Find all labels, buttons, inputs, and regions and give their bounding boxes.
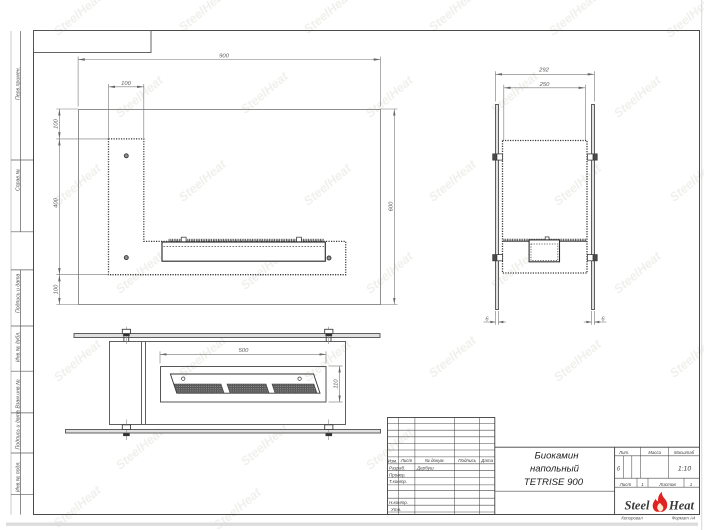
svg-text:SteelHeat: SteelHeat	[176, 333, 229, 381]
svg-text:400: 400	[53, 197, 59, 207]
svg-text:SteelHeat: SteelHeat	[611, 73, 664, 121]
svg-text:Подпись и дата: Подпись и дата	[16, 274, 22, 313]
svg-text:1: 1	[690, 482, 693, 487]
svg-text:Лит.: Лит.	[618, 450, 629, 455]
svg-text:Дербуш: Дербуш	[416, 465, 434, 470]
svg-text:SteelHeat: SteelHeat	[667, 333, 704, 381]
svg-text:1:10: 1:10	[678, 466, 691, 473]
svg-text:100: 100	[53, 118, 59, 128]
svg-text:Масштаб: Масштаб	[674, 450, 695, 455]
svg-text:Листов: Листов	[658, 482, 676, 487]
svg-text:Инв.№ дубл.: Инв.№ дубл.	[16, 332, 22, 362]
svg-text:SteelHeat: SteelHeat	[426, 333, 479, 381]
svg-text:100: 100	[121, 81, 131, 87]
svg-text:SteelHeat: SteelHeat	[546, 0, 599, 39]
svg-text:б: б	[617, 467, 621, 473]
svg-text:SteelHeat: SteelHeat	[51, 337, 104, 385]
svg-text:110: 110	[334, 379, 340, 389]
svg-text:Взам.инв.№: Взам.инв.№	[16, 379, 22, 409]
svg-text:SteelHeat: SteelHeat	[301, 337, 354, 385]
svg-text:SteelHeat: SteelHeat	[301, 0, 354, 37]
svg-text:SteelHeat: SteelHeat	[176, 0, 229, 35]
svg-text:Копировал: Копировал	[621, 516, 643, 521]
svg-text:250: 250	[539, 82, 550, 88]
svg-text:SteelHeat: SteelHeat	[363, 73, 416, 121]
svg-text:SteelHeat: SteelHeat	[611, 249, 664, 297]
svg-text:Перв.примен.: Перв.примен.	[16, 67, 22, 100]
svg-text:292: 292	[538, 68, 549, 74]
svg-text:SteelHeat: SteelHeat	[238, 421, 291, 469]
svg-text:напольный: напольный	[530, 464, 580, 475]
svg-text:Т.контр.: Т.контр.	[389, 479, 407, 484]
svg-text:SteelHeat: SteelHeat	[51, 0, 104, 39]
svg-text:Справ.№: Справ.№	[16, 168, 22, 191]
svg-text:Биокамин: Биокамин	[535, 451, 580, 462]
svg-text:100: 100	[53, 284, 59, 294]
svg-text:SteelHeat: SteelHeat	[551, 337, 604, 385]
svg-text:SteelHeat: SteelHeat	[113, 249, 166, 297]
svg-text:600: 600	[388, 201, 394, 211]
svg-text:Н.контр.: Н.контр.	[389, 500, 408, 505]
svg-text:6: 6	[601, 316, 605, 322]
svg-text:№ докум.: № докум.	[425, 458, 445, 463]
svg-text:SteelHeat: SteelHeat	[426, 0, 479, 35]
svg-text:Утв.: Утв.	[391, 507, 401, 512]
svg-text:SteelHeat: SteelHeat	[363, 249, 416, 297]
svg-text:Лист: Лист	[400, 458, 413, 463]
svg-text:Провер.: Провер.	[389, 472, 406, 477]
svg-text:SteelHeat: SteelHeat	[551, 161, 604, 209]
svg-text:Steel: Steel	[625, 499, 651, 513]
svg-text:1: 1	[641, 482, 644, 487]
svg-text:SteelHeat: SteelHeat	[663, 0, 704, 41]
svg-text:Подпись: Подпись	[458, 458, 476, 463]
svg-text:900: 900	[219, 54, 229, 60]
svg-text:Дата: Дата	[480, 458, 493, 463]
svg-text:SteelHeat: SteelHeat	[426, 157, 479, 205]
svg-text:6: 6	[485, 316, 489, 322]
svg-text:Подпись и дата: Подпись и дата	[16, 410, 22, 449]
svg-text:Масса: Масса	[648, 450, 661, 455]
svg-text:SteelHeat: SteelHeat	[176, 157, 229, 205]
svg-text:Формат А4: Формат А4	[672, 516, 696, 521]
svg-text:Инв.№ подл.: Инв.№ подл.	[16, 461, 22, 492]
svg-text:Разраб.: Разраб.	[389, 466, 405, 471]
svg-text:SteelHeat: SteelHeat	[667, 157, 704, 205]
svg-text:TETRISE 900: TETRISE 900	[524, 477, 584, 488]
svg-text:SteelHeat: SteelHeat	[301, 161, 354, 209]
svg-text:Heat: Heat	[668, 499, 695, 513]
svg-text:Изм.: Изм.	[388, 458, 398, 463]
svg-text:500: 500	[239, 348, 249, 354]
svg-text:Лист: Лист	[619, 482, 632, 487]
